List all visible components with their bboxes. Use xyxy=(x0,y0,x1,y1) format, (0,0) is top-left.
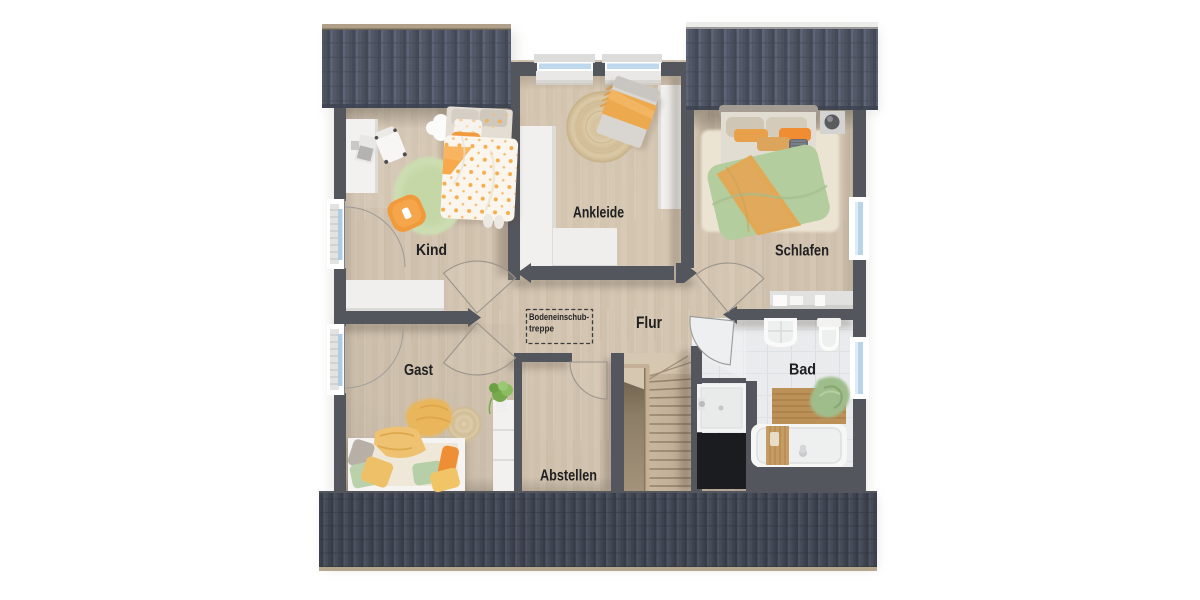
svg-text:Kind: Kind xyxy=(416,242,447,259)
svg-text:Abstellen: Abstellen xyxy=(540,468,597,485)
svg-text:Bad: Bad xyxy=(789,362,816,379)
svg-text:Gast: Gast xyxy=(404,362,434,379)
svg-text:Schlafen: Schlafen xyxy=(775,243,829,260)
svg-text:Bodeneinschub-: Bodeneinschub- xyxy=(529,312,589,323)
svg-text:Flur: Flur xyxy=(636,314,662,332)
svg-text:Ankleide: Ankleide xyxy=(573,205,624,222)
svg-text:treppe: treppe xyxy=(529,324,554,335)
